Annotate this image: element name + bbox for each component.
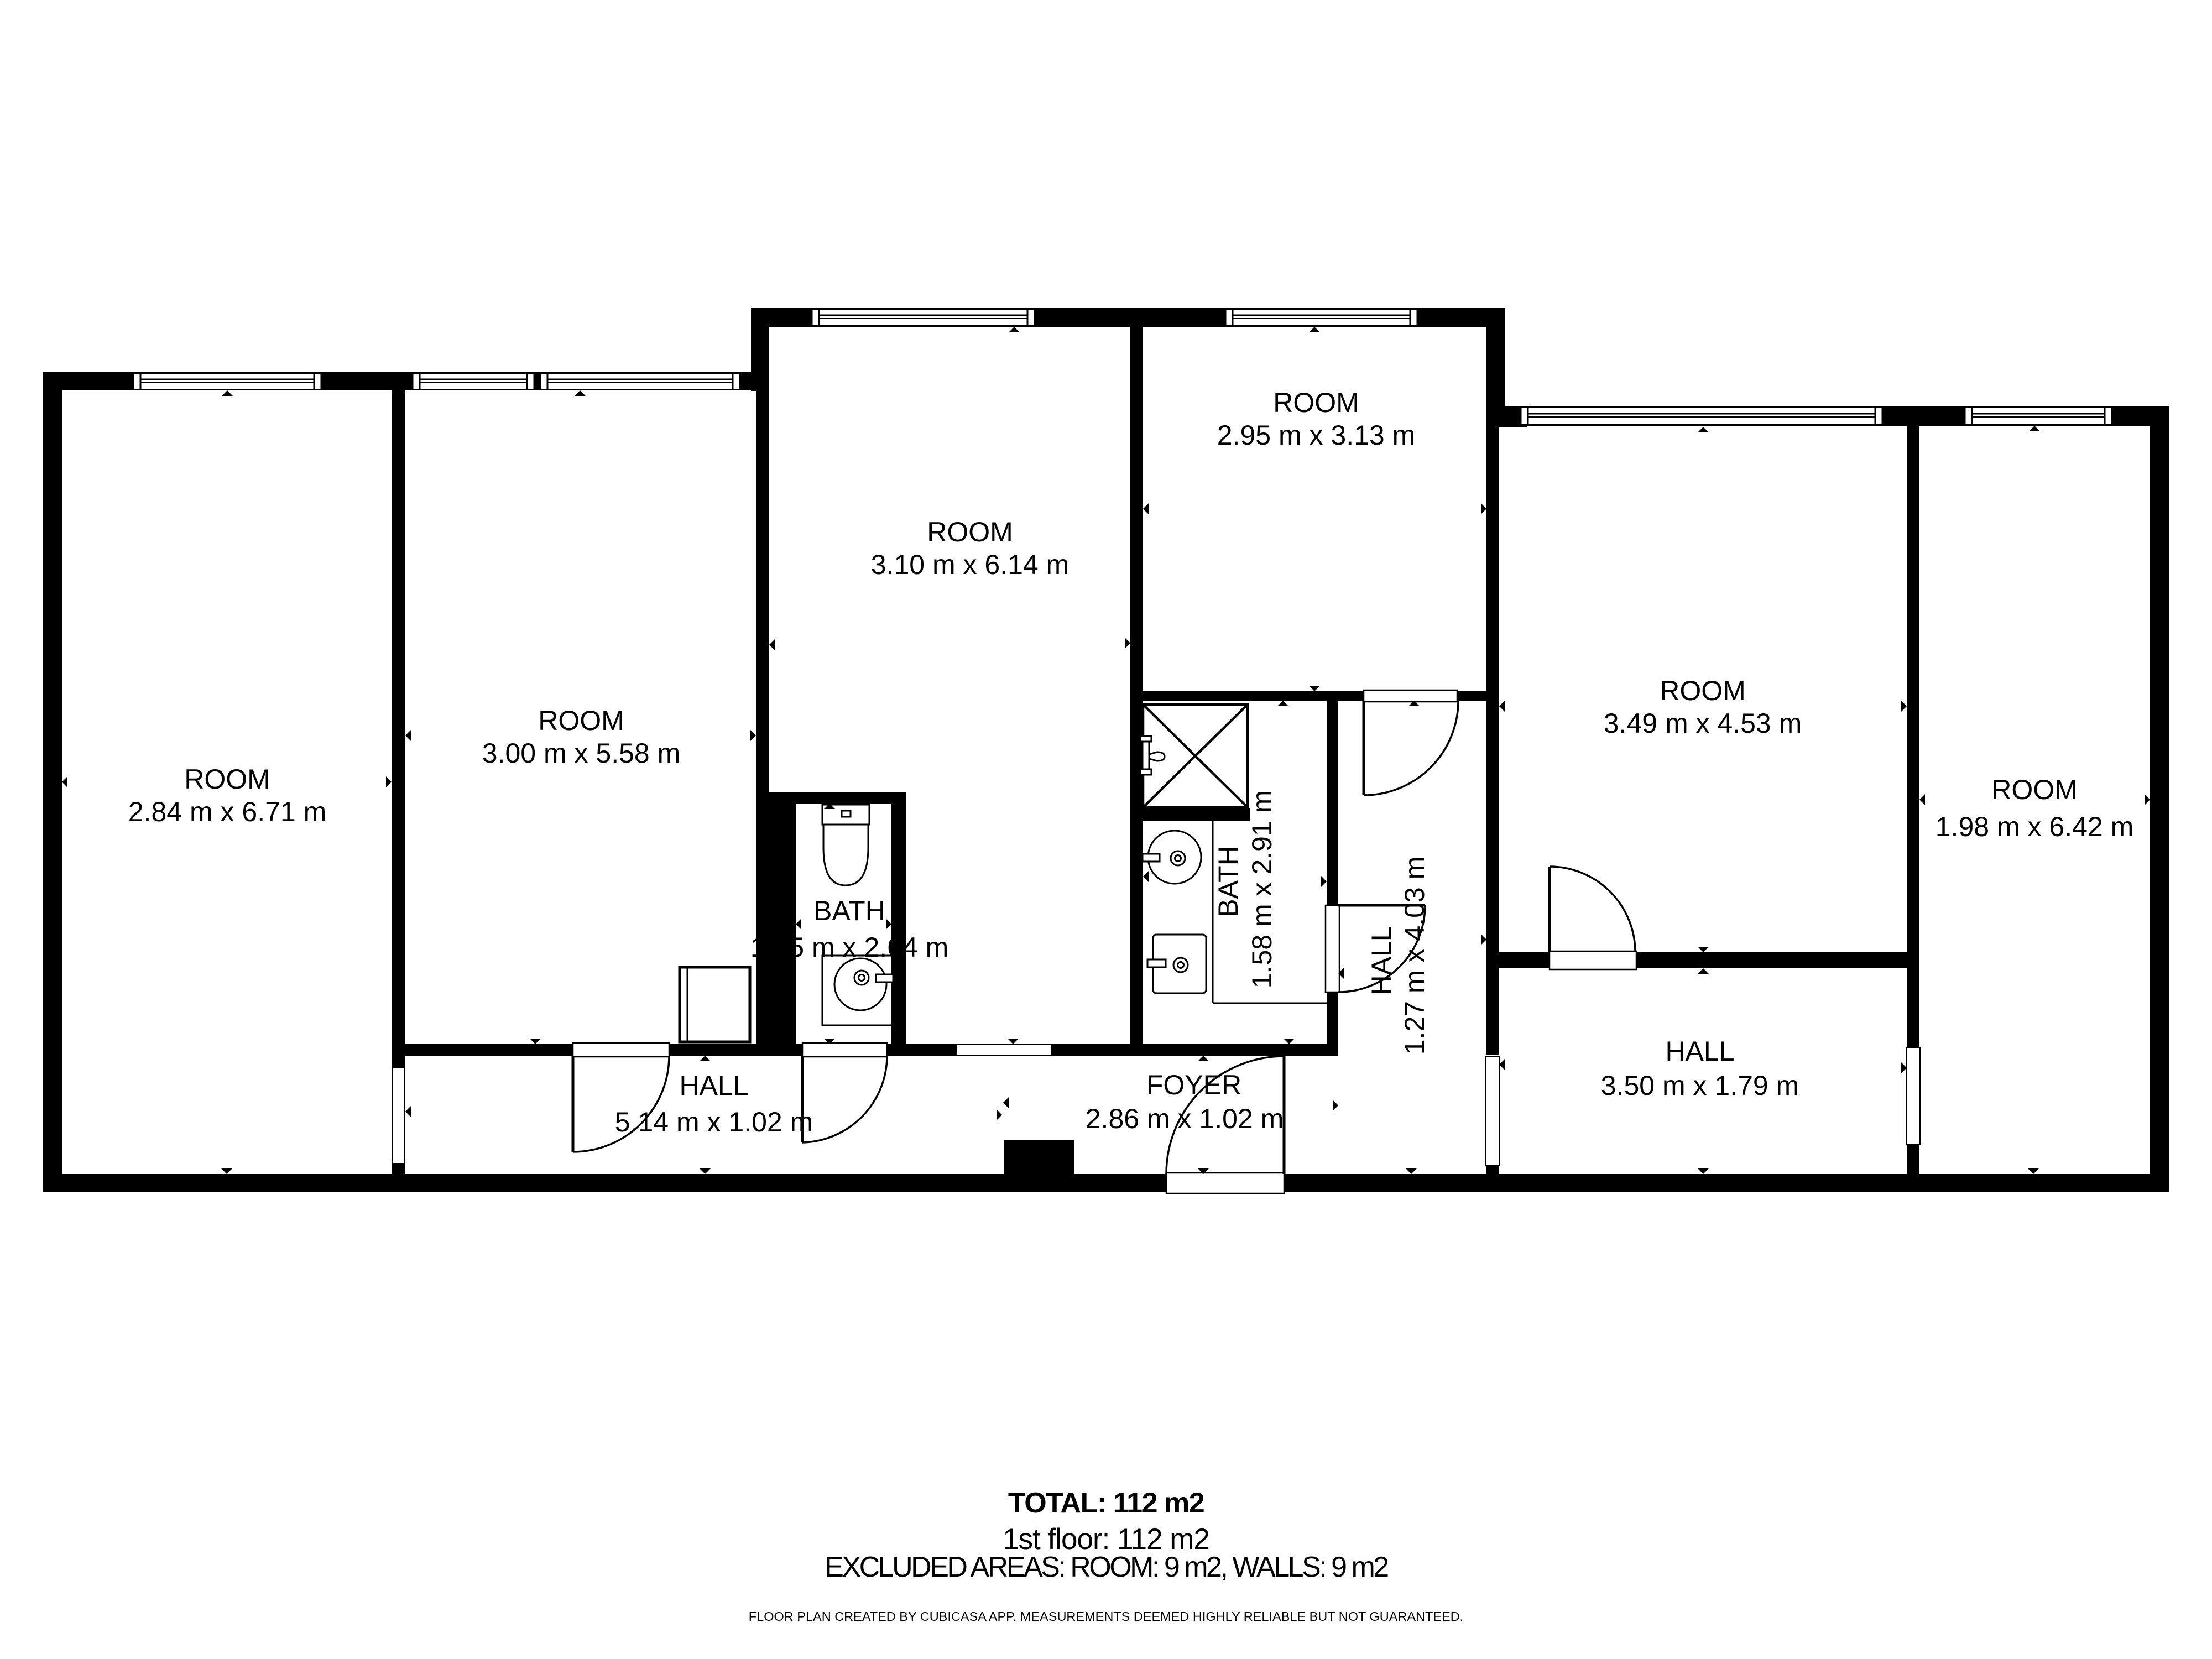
- svg-text:HALL: HALL: [1366, 926, 1397, 995]
- svg-text:HALL: HALL: [1665, 1036, 1734, 1067]
- svg-text:BATH: BATH: [813, 895, 885, 926]
- svg-text:1.15 m x 2.64 m: 1.15 m x 2.64 m: [750, 932, 949, 963]
- svg-text:ROOM: ROOM: [1660, 675, 1746, 706]
- svg-text:ROOM: ROOM: [927, 517, 1013, 547]
- svg-text:1.58 m x 2.91 m: 1.58 m x 2.91 m: [1246, 790, 1277, 989]
- svg-text:ROOM: ROOM: [184, 764, 270, 795]
- svg-text:3.49 m x 4.53 m: 3.49 m x 4.53 m: [1604, 708, 1802, 739]
- svg-text:2.95 m x 3.13 m: 2.95 m x 3.13 m: [1217, 420, 1416, 451]
- svg-text:2.84 m x 6.71 m: 2.84 m x 6.71 m: [128, 796, 327, 827]
- svg-text:ROOM: ROOM: [1991, 774, 2078, 805]
- svg-text:3.50 m x 1.79 m: 3.50 m x 1.79 m: [1601, 1070, 1799, 1101]
- svg-text:3.00 m x 5.58 m: 3.00 m x 5.58 m: [482, 738, 681, 769]
- svg-text:HALL: HALL: [679, 1070, 748, 1101]
- svg-text:1.98 m x 6.42 m: 1.98 m x 6.42 m: [1936, 811, 2134, 842]
- svg-text:FLOOR PLAN CREATED BY CUBICASA: FLOOR PLAN CREATED BY CUBICASA APP. MEAS…: [749, 1609, 1463, 1624]
- svg-text:FOYER: FOYER: [1146, 1070, 1241, 1100]
- svg-text:3.10 m x 6.14 m: 3.10 m x 6.14 m: [871, 549, 1070, 580]
- svg-text:ROOM: ROOM: [1273, 387, 1359, 418]
- svg-text:ROOM: ROOM: [538, 705, 624, 736]
- svg-text:BATH: BATH: [1213, 846, 1244, 917]
- svg-text:EXCLUDED AREAS: ROOM: 9 m2, WA: EXCLUDED AREAS: ROOM: 9 m2, WALLS: 9 m2: [825, 1551, 1388, 1583]
- svg-text:2.86 m x 1.02 m: 2.86 m x 1.02 m: [1086, 1103, 1284, 1134]
- svg-text:5.14 m x 1.02 m: 5.14 m x 1.02 m: [615, 1107, 813, 1138]
- svg-text:TOTAL: 112 m2: TOTAL: 112 m2: [1008, 1487, 1204, 1519]
- svg-text:1.27 m x 4.03 m: 1.27 m x 4.03 m: [1399, 857, 1430, 1055]
